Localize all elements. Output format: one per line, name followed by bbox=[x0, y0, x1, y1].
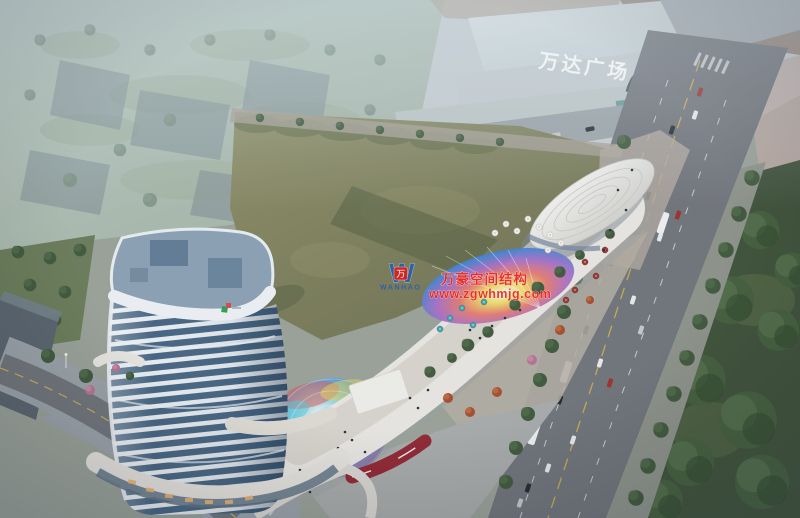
watermark-logo-name: WANHAO bbox=[380, 285, 422, 292]
watermark-brand-text: 万豪空间结构 bbox=[440, 271, 528, 287]
watermark-badge-glyph: 万 bbox=[396, 269, 405, 279]
aerial-architectural-rendering: 万达广场 W 万 WANHAO 万豪空间结构 www.zgwhmjg.com bbox=[0, 0, 800, 518]
rendering-canvas: 万达广场 W 万 WANHAO 万豪空间结构 www.zgwhmjg.com bbox=[0, 0, 800, 518]
watermark-url-text: www.zgwhmjg.com bbox=[428, 287, 551, 301]
